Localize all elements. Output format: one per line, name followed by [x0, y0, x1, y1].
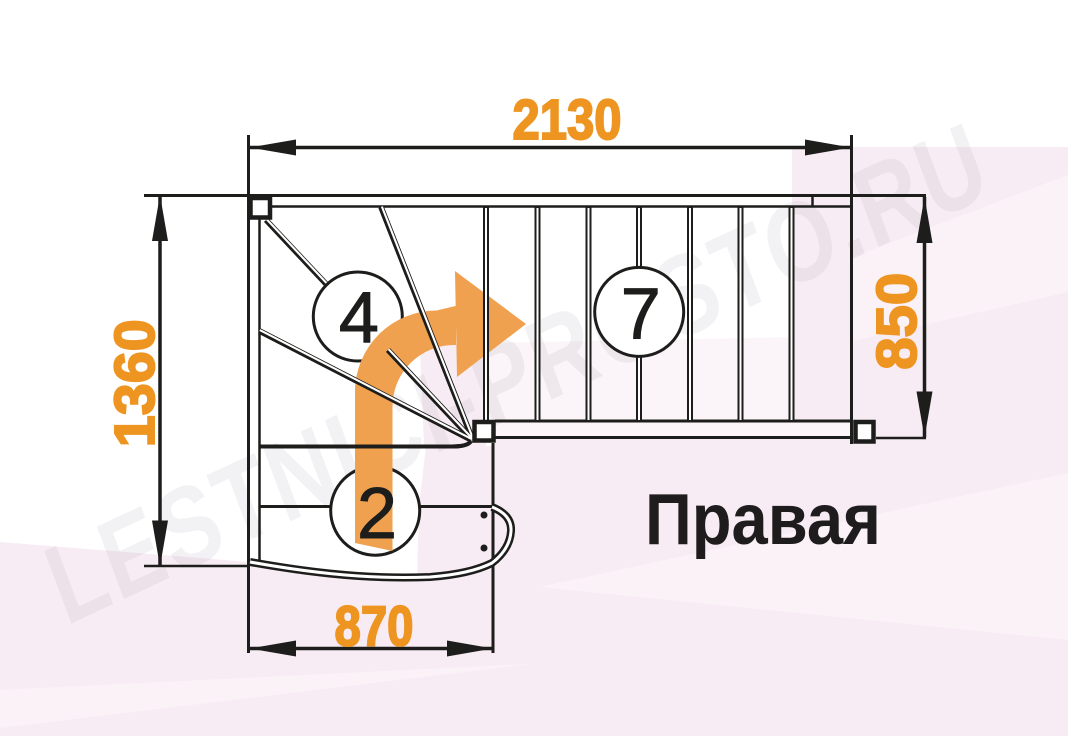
svg-text:1360: 1360	[103, 319, 167, 447]
svg-text:4: 4	[339, 279, 379, 359]
svg-text:870: 870	[335, 595, 414, 659]
svg-text:2: 2	[357, 474, 397, 554]
svg-text:Правая: Правая	[645, 480, 881, 560]
svg-text:7: 7	[621, 275, 661, 355]
svg-text:2130: 2130	[513, 88, 622, 152]
svg-text:850: 850	[865, 273, 929, 370]
